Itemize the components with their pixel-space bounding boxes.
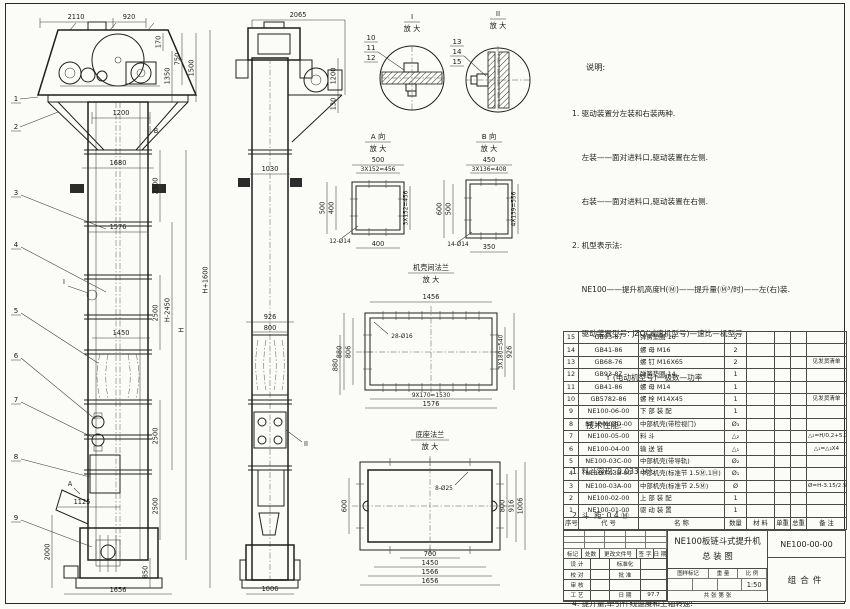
bom-unit-weight bbox=[775, 369, 791, 381]
bom-material bbox=[747, 369, 775, 381]
bom-code: NE100-06-00 bbox=[579, 406, 639, 418]
dim-b-500: 500 bbox=[445, 203, 453, 216]
flange-subtitle: 放 大 bbox=[423, 275, 440, 284]
stamp-header: 重 量 bbox=[709, 569, 738, 578]
bom-material bbox=[747, 332, 775, 344]
bom-qty: 1 bbox=[725, 505, 747, 517]
drawing-title-line1: NE100板链斗式提升机 bbox=[668, 534, 767, 549]
dim-a-456-right: 3X152=456 bbox=[404, 190, 410, 225]
bom-code: NE100-04-00 bbox=[579, 443, 639, 455]
detail-ii: II 放 大 13 14 15 bbox=[450, 9, 530, 114]
note-line: NE100——提升机高度H(Ⓜ)——提升量(Ⓜ³/时)——左(右)装. bbox=[572, 284, 844, 295]
view-b-title: B 向 bbox=[482, 132, 496, 141]
weight-box bbox=[718, 579, 743, 590]
bom-code: GB41-86 bbox=[579, 344, 639, 356]
bom-total-weight bbox=[791, 468, 807, 480]
casing-flange-detail: 机壳间法兰 放 大 1456 28-Ø16 880 806 3X180=540 … bbox=[336, 263, 515, 408]
bom-remark bbox=[807, 492, 847, 504]
detail-i-subtitle: 放 大 bbox=[404, 24, 421, 33]
dim-b-450: 450 bbox=[483, 156, 496, 164]
bom-row: 1 NE100-01-00 驱 动 装 置 1 bbox=[564, 505, 847, 517]
balloon-11: 11 bbox=[367, 44, 376, 52]
bom-total-weight bbox=[791, 455, 807, 467]
dim-2500-3: 2500 bbox=[152, 428, 160, 445]
role-label: 工 艺 bbox=[564, 591, 591, 600]
detail-mark-ii: II bbox=[304, 440, 308, 448]
bom-seq: 8 bbox=[564, 418, 579, 430]
stamp-value-row: 1:50 bbox=[668, 579, 767, 591]
view-a: A 向 放 大 500 3X152=456 500 400 3X152=456 … bbox=[319, 132, 411, 248]
bom-qty: 1 bbox=[725, 393, 747, 405]
bom-remark: 见发货清单 bbox=[807, 393, 847, 405]
note-line: 左装——面对进料口,驱动装置在左侧. bbox=[572, 152, 844, 163]
mark-box bbox=[668, 579, 693, 590]
bom-name: 驱 动 装 置 bbox=[639, 505, 725, 517]
bom-qty: △₂ bbox=[725, 431, 747, 443]
balloon-14: 14 bbox=[453, 48, 462, 56]
bom-header: 名 称 bbox=[639, 517, 725, 529]
bom-unit-weight bbox=[775, 492, 791, 504]
bom-unit-weight bbox=[775, 443, 791, 455]
bom-unit-weight bbox=[775, 418, 791, 430]
bom-code: NE100-03D-00 bbox=[579, 418, 639, 430]
dim-a-400-bottom: 400 bbox=[372, 240, 385, 248]
bom-header: 材 料 bbox=[747, 517, 775, 529]
dim-800: 800 bbox=[264, 324, 277, 332]
note-line: 2. 机型表示法: bbox=[572, 240, 844, 251]
mark-box bbox=[693, 579, 718, 590]
drawing-views: 2110 920 170 1350 750 1500 1200 B 1680 1… bbox=[0, 0, 565, 609]
bom-seq: 7 bbox=[564, 431, 579, 443]
bom-code: GB93-87 bbox=[579, 369, 639, 381]
bom-total-weight bbox=[791, 492, 807, 504]
detail-ii-subtitle: 放 大 bbox=[490, 21, 507, 30]
bom-material bbox=[747, 393, 775, 405]
bill-of-materials: 15 GB93-87 弹簧垫圈 16 2 14 GB41-86 螺 母 M16 … bbox=[563, 331, 847, 530]
bom-qty: Ø bbox=[725, 480, 747, 492]
view-a-subtitle: 放 大 bbox=[370, 144, 387, 153]
bom-code: GB68-76 bbox=[579, 356, 639, 368]
title-block-center-zone: NE100板链斗式提升机 总 装 图 图样标记 重 量 比 例 1:50 共 张… bbox=[668, 531, 768, 601]
dim-2065: 2065 bbox=[290, 11, 307, 19]
part-type: 组合件 bbox=[768, 558, 845, 601]
bom-remark: △₁=△₂X4 bbox=[807, 443, 847, 455]
bom-total-weight bbox=[791, 443, 807, 455]
dim-b-holes: 14-Ø14 bbox=[447, 241, 469, 248]
bom-material bbox=[747, 505, 775, 517]
bom-code: NE100-03B-00 bbox=[579, 468, 639, 480]
bom-code: NE100-01-00 bbox=[579, 505, 639, 517]
bom-material bbox=[747, 356, 775, 368]
bom-remark: △₂=H/0.2+5.75 bbox=[807, 431, 847, 443]
dim-fl-1576: 1576 bbox=[423, 400, 440, 408]
bom-material bbox=[747, 406, 775, 418]
bom-code: GB5782-86 bbox=[579, 393, 639, 405]
bom-material bbox=[747, 480, 775, 492]
bom-name: 弹簧垫圈 14 bbox=[639, 369, 725, 381]
balloon-15: 15 bbox=[453, 58, 462, 66]
dim-a-456-top: 3X152=456 bbox=[361, 167, 396, 173]
rev-col: 签 字 bbox=[637, 549, 654, 558]
bom-row: 8 NE100-03D-00 中部机壳(带检视门) Ø₃ bbox=[564, 418, 847, 430]
bom-seq: 11 bbox=[564, 381, 579, 393]
bom-row: 11 GB41-86 螺 母 M14 1 bbox=[564, 381, 847, 393]
bom-header: 总重 bbox=[791, 517, 807, 529]
dim-1500: 1500 bbox=[188, 60, 196, 77]
dim-a-400-left: 400 bbox=[328, 202, 336, 215]
bom-row: 3 NE100-03A-00 中部机壳(标准节 2.5Ⓜ) Ø Ø=H-3.15… bbox=[564, 480, 847, 492]
bom-qty: Ø₃ bbox=[725, 418, 747, 430]
bom-name: 下 部 装 配 bbox=[639, 406, 725, 418]
dim-1125: 1125 bbox=[74, 498, 91, 506]
dim-bs-1656: 1656 bbox=[422, 577, 439, 585]
bom-seq: 13 bbox=[564, 356, 579, 368]
dim-fl-926: 926 bbox=[506, 346, 514, 359]
bom-header: 序号 bbox=[564, 517, 579, 529]
bom-name: 上 部 装 配 bbox=[639, 492, 725, 504]
bom-qty: Ø₂ bbox=[725, 455, 747, 467]
balloon-6: 6 bbox=[14, 352, 19, 360]
bom-material bbox=[747, 381, 775, 393]
bom-code: NE100-02-00 bbox=[579, 492, 639, 504]
dim-fl-holes: 28-Ø16 bbox=[391, 333, 413, 340]
balloon-10: 10 bbox=[367, 34, 376, 42]
bom-unit-weight bbox=[775, 356, 791, 368]
section-arrow-a: A bbox=[68, 480, 73, 488]
bom-code: NE100-03A-00 bbox=[579, 480, 639, 492]
dim-926: 926 bbox=[264, 313, 277, 321]
dim-a-500-left: 500 bbox=[319, 202, 327, 215]
bom-qty: 1 bbox=[725, 492, 747, 504]
bom-remark bbox=[807, 381, 847, 393]
dim-h-2450: H-2450 bbox=[164, 298, 172, 322]
dim-fl-1530: 9X170=1530 bbox=[412, 393, 451, 399]
bom-name: 螺 母 M14 bbox=[639, 381, 725, 393]
drawing-title: NE100板链斗式提升机 总 装 图 bbox=[668, 531, 767, 569]
dim-b-350: 350 bbox=[483, 243, 496, 251]
bom-seq: 9 bbox=[564, 406, 579, 418]
dim-fl-540: 3X180=540 bbox=[499, 334, 505, 369]
bom-row: 10 GB5782-86 螺 栓 M14X45 1 见发货清单 bbox=[564, 393, 847, 405]
bom-unit-weight bbox=[775, 480, 791, 492]
dim-b-408: 3X136=408 bbox=[472, 167, 507, 173]
drawing-sheet: 2110 920 170 1350 750 1500 1200 B 1680 1… bbox=[0, 0, 850, 609]
detail-mark-i: I bbox=[63, 278, 65, 286]
bom-qty: 1 bbox=[725, 381, 747, 393]
title-block-number-zone: NE100-00-00 组合件 bbox=[768, 531, 845, 601]
bom-unit-weight bbox=[775, 332, 791, 344]
balloon-12: 12 bbox=[367, 54, 376, 62]
role-label: 校 对 bbox=[564, 570, 591, 579]
dim-1656: 1656 bbox=[110, 586, 127, 594]
balloon-4: 4 bbox=[14, 241, 19, 249]
scale-value: 1:50 bbox=[742, 579, 767, 590]
dim-1450: 1450 bbox=[113, 329, 130, 337]
bom-seq: 1 bbox=[564, 505, 579, 517]
dim-850: 850 bbox=[142, 566, 150, 579]
dim-b-600: 600 bbox=[436, 203, 444, 216]
bom-row: 5 NE100-03C-00 中部机壳(带导轨) Ø₂ bbox=[564, 455, 847, 467]
bom-row: 6 NE100-04-00 输 送 链 △₁ △₁=△₂X4 bbox=[564, 443, 847, 455]
dim-a-500-top: 500 bbox=[372, 156, 385, 164]
bom-row: 4 NE100-03B-00 中部机壳(标准节 1.5Ⓜ,1Ⓜ) Ø₁ bbox=[564, 468, 847, 480]
drawing-title-line2: 总 装 图 bbox=[668, 549, 767, 564]
bom-total-weight bbox=[791, 418, 807, 430]
bom-name: 螺 钉 M16X65 bbox=[639, 356, 725, 368]
role-row: 审 核 bbox=[564, 580, 667, 590]
dim-2500-2: 2500 bbox=[152, 305, 160, 322]
role-label: 设 计 bbox=[564, 559, 591, 568]
bom-seq: 6 bbox=[564, 443, 579, 455]
bom-total-weight bbox=[791, 406, 807, 418]
role-label-2 bbox=[610, 580, 641, 589]
bom-name: 中部机壳(标准节 1.5Ⓜ,1Ⓜ) bbox=[639, 468, 725, 480]
bom-material bbox=[747, 443, 775, 455]
bom-unit-weight bbox=[775, 431, 791, 443]
role-row: 校 对 批 准 bbox=[564, 570, 667, 580]
base-subtitle: 放 大 bbox=[422, 442, 439, 451]
dim-2500-4: 2500 bbox=[152, 498, 160, 515]
rev-col: 日 期 bbox=[654, 549, 667, 558]
revision-header-row: 标记 处数 更改文件号 签 字 日 期 bbox=[564, 549, 667, 559]
dim-920: 920 bbox=[123, 13, 136, 21]
dim-1200-side: 1200 bbox=[330, 68, 338, 85]
stamp-header-row: 图样标记 重 量 比 例 bbox=[668, 569, 767, 579]
bom-seq: 10 bbox=[564, 393, 579, 405]
bom-remark bbox=[807, 332, 847, 344]
bom-qty: 2 bbox=[725, 356, 747, 368]
flange-title: 机壳间法兰 bbox=[413, 263, 449, 272]
dim-fl-880: 880 bbox=[336, 346, 344, 359]
bom-row: 14 GB41-86 螺 母 M16 2 bbox=[564, 344, 847, 356]
bom-remark bbox=[807, 468, 847, 480]
bom-header: 代 号 bbox=[579, 517, 639, 529]
role-label: 审 核 bbox=[564, 580, 591, 589]
bom-total-weight bbox=[791, 332, 807, 344]
role-value: 97.7 bbox=[641, 591, 667, 600]
dim-bs-1006: 1006 bbox=[517, 498, 525, 515]
bom-material bbox=[747, 344, 775, 356]
role-signature bbox=[591, 570, 610, 579]
rev-col: 更改文件号 bbox=[600, 549, 637, 558]
base-title: 底座法兰 bbox=[416, 430, 445, 439]
dim-h+1600: H+1600 bbox=[202, 266, 210, 293]
bom-seq: 15 bbox=[564, 332, 579, 344]
bom-remark bbox=[807, 505, 847, 517]
balloon-13: 13 bbox=[453, 38, 462, 46]
bom-unit-weight bbox=[775, 468, 791, 480]
bom-qty: 1 bbox=[725, 406, 747, 418]
bom-row: 15 GB93-87 弹簧垫圈 16 2 bbox=[564, 332, 847, 344]
dim-2000: 2000 bbox=[44, 544, 52, 561]
role-value bbox=[641, 559, 667, 568]
bom-name: 中部机壳(标准节 2.5Ⓜ) bbox=[639, 480, 725, 492]
dim-1576: 1576 bbox=[110, 223, 127, 231]
stamp-header: 图样标记 bbox=[668, 569, 709, 578]
bom-seq: 2 bbox=[564, 492, 579, 504]
dim-b-556: 4X139=556 bbox=[512, 191, 518, 226]
bom-total-weight bbox=[791, 505, 807, 517]
role-signature bbox=[591, 580, 610, 589]
bom-remark bbox=[807, 455, 847, 467]
bom-remark bbox=[807, 406, 847, 418]
bom-qty: △₁ bbox=[725, 443, 747, 455]
view-b-subtitle: 放 大 bbox=[481, 144, 498, 153]
dim-1350: 1350 bbox=[164, 68, 172, 85]
bom-remark bbox=[807, 344, 847, 356]
bom-name: 输 送 链 bbox=[639, 443, 725, 455]
bom-seq: 5 bbox=[564, 455, 579, 467]
bom-qty: Ø₁ bbox=[725, 468, 747, 480]
section-arrow-b: B bbox=[154, 127, 159, 135]
bom-material bbox=[747, 455, 775, 467]
role-row: 工 艺 日 期 97.7 bbox=[564, 591, 667, 601]
bom-remark bbox=[807, 418, 847, 430]
base-flange-detail: 底座法兰 放 大 8-Ø25 600 800 916 1006 700 1450… bbox=[341, 430, 526, 585]
rev-col: 标记 bbox=[564, 549, 582, 558]
bom-header: 数量 bbox=[725, 517, 747, 529]
bom-seq: 4 bbox=[564, 468, 579, 480]
dim-2110: 2110 bbox=[68, 13, 85, 21]
detail-i: I 放 大 10 11 12 bbox=[364, 12, 444, 110]
bom-header: 单重 bbox=[775, 517, 791, 529]
balloon-7: 7 bbox=[14, 396, 18, 404]
dim-fl-1456: 1456 bbox=[423, 293, 440, 301]
role-label-2: 日 期 bbox=[610, 591, 641, 600]
bom-qty: 2 bbox=[725, 344, 747, 356]
sheet-count: 共 张 第 张 bbox=[668, 591, 767, 601]
balloon-2: 2 bbox=[14, 123, 18, 131]
bom-qty: 1 bbox=[725, 369, 747, 381]
title-block: 标记 处数 更改文件号 签 字 日 期 设 计 标准化 校 对 批 准 审 核 bbox=[563, 530, 846, 602]
role-signature bbox=[591, 591, 610, 600]
bom-code: NE100-03C-00 bbox=[579, 455, 639, 467]
dim-750: 750 bbox=[174, 53, 182, 66]
bom-seq: 12 bbox=[564, 369, 579, 381]
bom-row: 2 NE100-02-00 上 部 装 配 1 bbox=[564, 492, 847, 504]
detail-ii-title: II bbox=[496, 9, 500, 18]
bom-header-row: 序号 代 号 名 称 数量 材 料 单重 总重 备 注 bbox=[564, 517, 847, 529]
rev-col: 处数 bbox=[582, 549, 600, 558]
bom-unit-weight bbox=[775, 393, 791, 405]
dim-bs-1566: 1566 bbox=[422, 568, 439, 576]
dim-fl-806: 806 bbox=[345, 346, 353, 359]
role-row: 设 计 标准化 bbox=[564, 559, 667, 569]
bom-total-weight bbox=[791, 393, 807, 405]
bom-code: GB93-87 bbox=[579, 332, 639, 344]
bom-row: 12 GB93-87 弹簧垫圈 14 1 bbox=[564, 369, 847, 381]
bom-code: GB41-86 bbox=[579, 381, 639, 393]
dim-880: 880 bbox=[332, 359, 340, 372]
bom-material bbox=[747, 492, 775, 504]
note-line: 右装——面对进料口,驱动装置在右侧. bbox=[572, 196, 844, 207]
bom-total-weight bbox=[791, 369, 807, 381]
bom-name: 螺 栓 M14X45 bbox=[639, 393, 725, 405]
dim-1030: 1030 bbox=[262, 165, 279, 173]
bom-header: 备 注 bbox=[807, 517, 847, 529]
bom-remark bbox=[807, 369, 847, 381]
view-a-title: A 向 bbox=[371, 132, 385, 141]
bom-row: 13 GB68-76 螺 钉 M16X65 2 见发货清单 bbox=[564, 356, 847, 368]
dim-170: 170 bbox=[155, 36, 163, 49]
role-value bbox=[641, 580, 667, 589]
dim-2500-1: 2500 bbox=[152, 178, 160, 195]
bom-unit-weight bbox=[775, 344, 791, 356]
bom-seq: 14 bbox=[564, 344, 579, 356]
dim-bs-800: 800 bbox=[499, 500, 507, 513]
dim-bs-600: 600 bbox=[341, 500, 349, 513]
note-line: 1. 驱动装置分左装和右装两种. bbox=[572, 108, 844, 119]
bom-material bbox=[747, 431, 775, 443]
bom-row: 9 NE100-06-00 下 部 装 配 1 bbox=[564, 406, 847, 418]
role-value bbox=[641, 570, 667, 579]
stamp-header: 比 例 bbox=[738, 569, 767, 578]
bom-material bbox=[747, 418, 775, 430]
bom-name: 弹簧垫圈 16 bbox=[639, 332, 725, 344]
dim-bs-holes: 8-Ø25 bbox=[435, 485, 453, 492]
front-view: 2110 920 170 1350 750 1500 1200 B 1680 1… bbox=[11, 13, 210, 594]
role-label-2: 批 准 bbox=[610, 570, 641, 579]
bom-unit-weight bbox=[775, 505, 791, 517]
bom-remark: Ø=H-3.15/2.5 bbox=[807, 480, 847, 492]
title-block-revision-zone: 标记 处数 更改文件号 签 字 日 期 设 计 标准化 校 对 批 准 审 核 bbox=[564, 531, 668, 601]
dim-bs-1450: 1450 bbox=[422, 559, 439, 567]
dim-h: H bbox=[178, 327, 186, 332]
bom-row: 7 NE100-05-00 料 斗 △₂ △₂=H/0.2+5.75 bbox=[564, 431, 847, 443]
bom-seq: 3 bbox=[564, 480, 579, 492]
detail-i-title: I bbox=[411, 12, 413, 21]
bom-total-weight bbox=[791, 356, 807, 368]
bom-name: 料 斗 bbox=[639, 431, 725, 443]
bom-name: 中部机壳(带导轨) bbox=[639, 455, 725, 467]
bom-name: 中部机壳(带检视门) bbox=[639, 418, 725, 430]
bom-total-weight bbox=[791, 344, 807, 356]
notes-heading: 说明: bbox=[586, 62, 844, 73]
bom-remark: 见发货清单 bbox=[807, 356, 847, 368]
dim-bs-700: 700 bbox=[424, 550, 437, 558]
balloon-8: 8 bbox=[14, 453, 18, 461]
bom-name: 螺 母 M16 bbox=[639, 344, 725, 356]
bom-unit-weight bbox=[775, 455, 791, 467]
dim-1200: 1200 bbox=[113, 109, 130, 117]
balloon-3: 3 bbox=[14, 189, 18, 197]
dim-a-holes: 12-Ø14 bbox=[329, 238, 351, 245]
dim-130: 130 bbox=[330, 98, 338, 111]
bom-unit-weight bbox=[775, 406, 791, 418]
bom-code: NE100-05-00 bbox=[579, 431, 639, 443]
bom-material bbox=[747, 468, 775, 480]
bom-unit-weight bbox=[775, 381, 791, 393]
balloon-5: 5 bbox=[14, 307, 18, 315]
dim-1006: 1006 bbox=[262, 585, 279, 593]
dim-1680: 1680 bbox=[110, 159, 127, 167]
view-b: B 向 放 大 450 3X136=408 600 500 4X139=556 … bbox=[436, 132, 519, 252]
bom-total-weight bbox=[791, 431, 807, 443]
bom-qty: 2 bbox=[725, 332, 747, 344]
drawing-number: NE100-00-00 bbox=[768, 531, 845, 558]
bom-total-weight bbox=[791, 381, 807, 393]
role-signature bbox=[591, 559, 610, 568]
balloon-9: 9 bbox=[14, 514, 18, 522]
bom-total-weight bbox=[791, 480, 807, 492]
dim-bs-916: 916 bbox=[508, 500, 516, 513]
balloon-1: 1 bbox=[14, 95, 18, 103]
role-label-2: 标准化 bbox=[610, 559, 641, 568]
side-view: 2065 1200 130 1030 926 800 880 II bbox=[236, 11, 345, 594]
